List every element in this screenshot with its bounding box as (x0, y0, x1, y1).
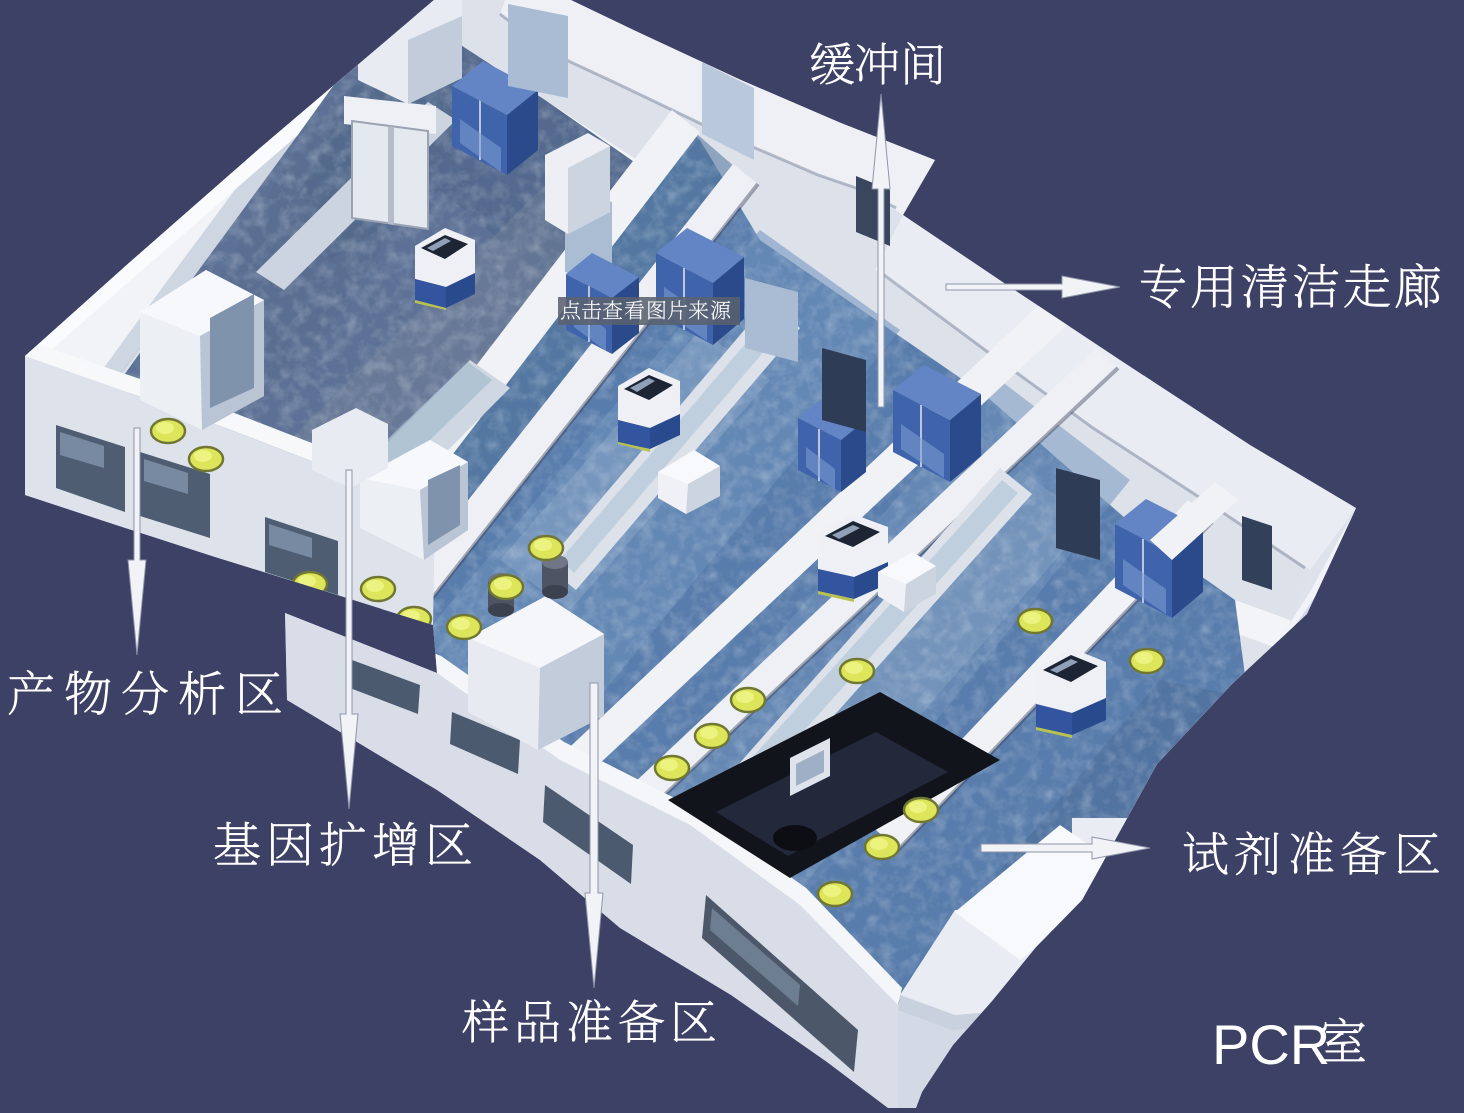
svg-text:PCR: PCR (1212, 1013, 1330, 1076)
